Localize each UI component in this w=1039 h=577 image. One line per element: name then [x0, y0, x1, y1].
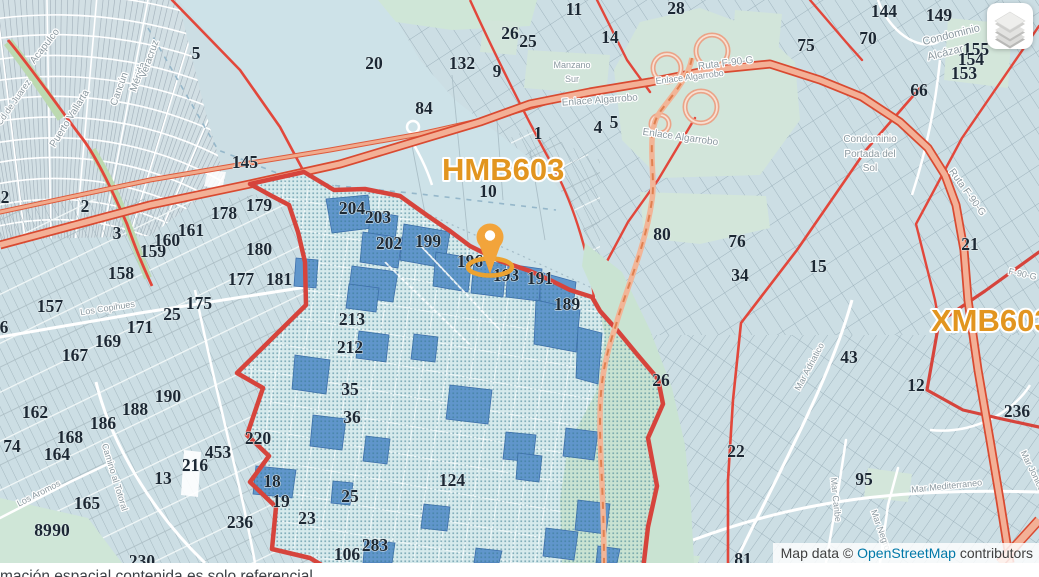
svg-text:3: 3 — [113, 223, 122, 243]
svg-text:Mar Jonico: Mar Jonico — [1019, 449, 1039, 493]
svg-text:212: 212 — [337, 337, 363, 357]
svg-text:84: 84 — [415, 98, 433, 118]
svg-text:144: 144 — [871, 1, 898, 21]
svg-text:453: 453 — [205, 442, 232, 462]
svg-text:157: 157 — [37, 296, 64, 316]
svg-text:188: 188 — [122, 399, 149, 419]
svg-text:6: 6 — [0, 317, 9, 337]
svg-text:26: 26 — [501, 23, 519, 43]
svg-text:F-90-G: F-90-G — [1008, 266, 1038, 282]
svg-text:12: 12 — [907, 375, 925, 395]
svg-text:Sur: Sur — [565, 74, 579, 84]
svg-text:132: 132 — [449, 53, 475, 73]
svg-text:35: 35 — [341, 379, 359, 399]
svg-text:Acapulco: Acapulco — [28, 27, 62, 67]
svg-text:Veracruz: Veracruz — [138, 39, 162, 80]
svg-text:220: 220 — [245, 428, 272, 448]
svg-text:2: 2 — [81, 196, 90, 216]
svg-text:171: 171 — [127, 317, 153, 337]
svg-text:11: 11 — [566, 0, 583, 19]
svg-text:28: 28 — [667, 0, 685, 18]
svg-text:Enlace Algarrobo: Enlace Algarrobo — [561, 92, 638, 108]
svg-text:19: 19 — [272, 491, 290, 511]
svg-text:80: 80 — [653, 224, 671, 244]
svg-text:230: 230 — [129, 551, 156, 563]
svg-text:179: 179 — [246, 195, 273, 215]
svg-text:18: 18 — [263, 471, 281, 491]
svg-text:21: 21 — [961, 234, 979, 254]
svg-text:9: 9 — [493, 61, 502, 81]
svg-text:180: 180 — [246, 239, 273, 259]
svg-text:Mar Adriatico: Mar Adriatico — [793, 341, 826, 392]
svg-text:25: 25 — [163, 304, 181, 324]
svg-text:Los Copihues: Los Copihues — [80, 299, 136, 318]
svg-text:Mar Caribe: Mar Caribe — [829, 477, 844, 522]
svg-text:Enlace Algarrobo: Enlace Algarrobo — [655, 68, 724, 86]
svg-text:Sol: Sol — [863, 163, 877, 174]
svg-text:189: 189 — [554, 294, 581, 314]
svg-text:81: 81 — [734, 549, 752, 563]
svg-text:149: 149 — [926, 5, 953, 25]
svg-text:2: 2 — [1, 187, 10, 207]
svg-text:283: 283 — [362, 535, 389, 555]
svg-text:23: 23 — [298, 508, 316, 528]
svg-text:203: 203 — [365, 207, 392, 227]
svg-text:5: 5 — [610, 112, 619, 132]
svg-text:34: 34 — [731, 265, 749, 285]
svg-text:Cd de Juarez: Cd de Juarez — [0, 77, 33, 127]
svg-text:22: 22 — [727, 441, 745, 461]
svg-text:1: 1 — [534, 123, 543, 143]
svg-text:191: 191 — [527, 268, 553, 288]
svg-text:124: 124 — [439, 470, 466, 490]
svg-text:76: 76 — [728, 231, 746, 251]
svg-text:164: 164 — [44, 444, 71, 464]
svg-text:36: 36 — [343, 407, 361, 427]
svg-text:70: 70 — [859, 28, 877, 48]
svg-text:HMB603: HMB603 — [442, 152, 564, 187]
svg-text:15: 15 — [809, 256, 827, 276]
svg-text:162: 162 — [22, 402, 48, 422]
svg-text:XMB603: XMB603 — [931, 303, 1039, 338]
svg-text:Enlace Algarrobo: Enlace Algarrobo — [642, 127, 719, 149]
svg-text:66: 66 — [910, 80, 928, 100]
svg-text:90: 90 — [52, 520, 70, 540]
svg-text:165: 165 — [74, 493, 101, 513]
svg-text:145: 145 — [232, 152, 259, 172]
svg-text:213: 213 — [339, 309, 366, 329]
svg-text:181: 181 — [266, 269, 292, 289]
svg-text:75: 75 — [797, 35, 815, 55]
svg-text:5: 5 — [192, 43, 201, 63]
svg-text:Portada del: Portada del — [844, 149, 895, 160]
svg-text:25: 25 — [341, 486, 359, 506]
svg-text:153: 153 — [951, 63, 978, 83]
svg-text:169: 169 — [95, 331, 122, 351]
svg-text:160: 160 — [154, 230, 181, 250]
svg-text:74: 74 — [3, 436, 21, 456]
svg-text:25: 25 — [519, 31, 537, 51]
svg-text:106: 106 — [334, 544, 361, 563]
svg-text:204: 204 — [339, 198, 366, 218]
svg-text:202: 202 — [376, 233, 402, 253]
svg-text:186: 186 — [90, 413, 117, 433]
svg-text:178: 178 — [211, 203, 238, 223]
svg-text:161: 161 — [178, 220, 204, 240]
svg-text:Condominio: Condominio — [843, 134, 897, 145]
svg-text:177: 177 — [228, 269, 255, 289]
svg-text:20: 20 — [365, 53, 383, 73]
svg-text:Mar Mediterraneo: Mar Mediterraneo — [911, 477, 983, 494]
svg-text:Ruta F-90-G: Ruta F-90-G — [697, 55, 754, 73]
svg-text:Puerto Vallarta: Puerto Vallarta — [48, 88, 92, 150]
svg-text:13: 13 — [154, 468, 172, 488]
svg-text:158: 158 — [108, 263, 135, 283]
svg-text:26: 26 — [652, 370, 670, 390]
svg-text:95: 95 — [855, 469, 873, 489]
svg-text:Los Aromos: Los Aromos — [15, 478, 62, 509]
svg-text:Manzano: Manzano — [553, 60, 590, 70]
svg-text:43: 43 — [840, 347, 858, 367]
svg-text:Camino al Totoral: Camino al Totoral — [100, 442, 130, 512]
svg-text:199: 199 — [415, 231, 442, 251]
svg-text:4: 4 — [594, 117, 603, 137]
svg-text:167: 167 — [62, 345, 89, 365]
svg-text:190: 190 — [155, 386, 182, 406]
svg-text:236: 236 — [1004, 401, 1031, 421]
svg-text:Ruta F-90-G: Ruta F-90-G — [946, 167, 988, 219]
svg-text:14: 14 — [601, 27, 619, 47]
svg-text:236: 236 — [227, 512, 254, 532]
svg-text:175: 175 — [186, 293, 213, 313]
svg-text:89: 89 — [34, 520, 52, 540]
